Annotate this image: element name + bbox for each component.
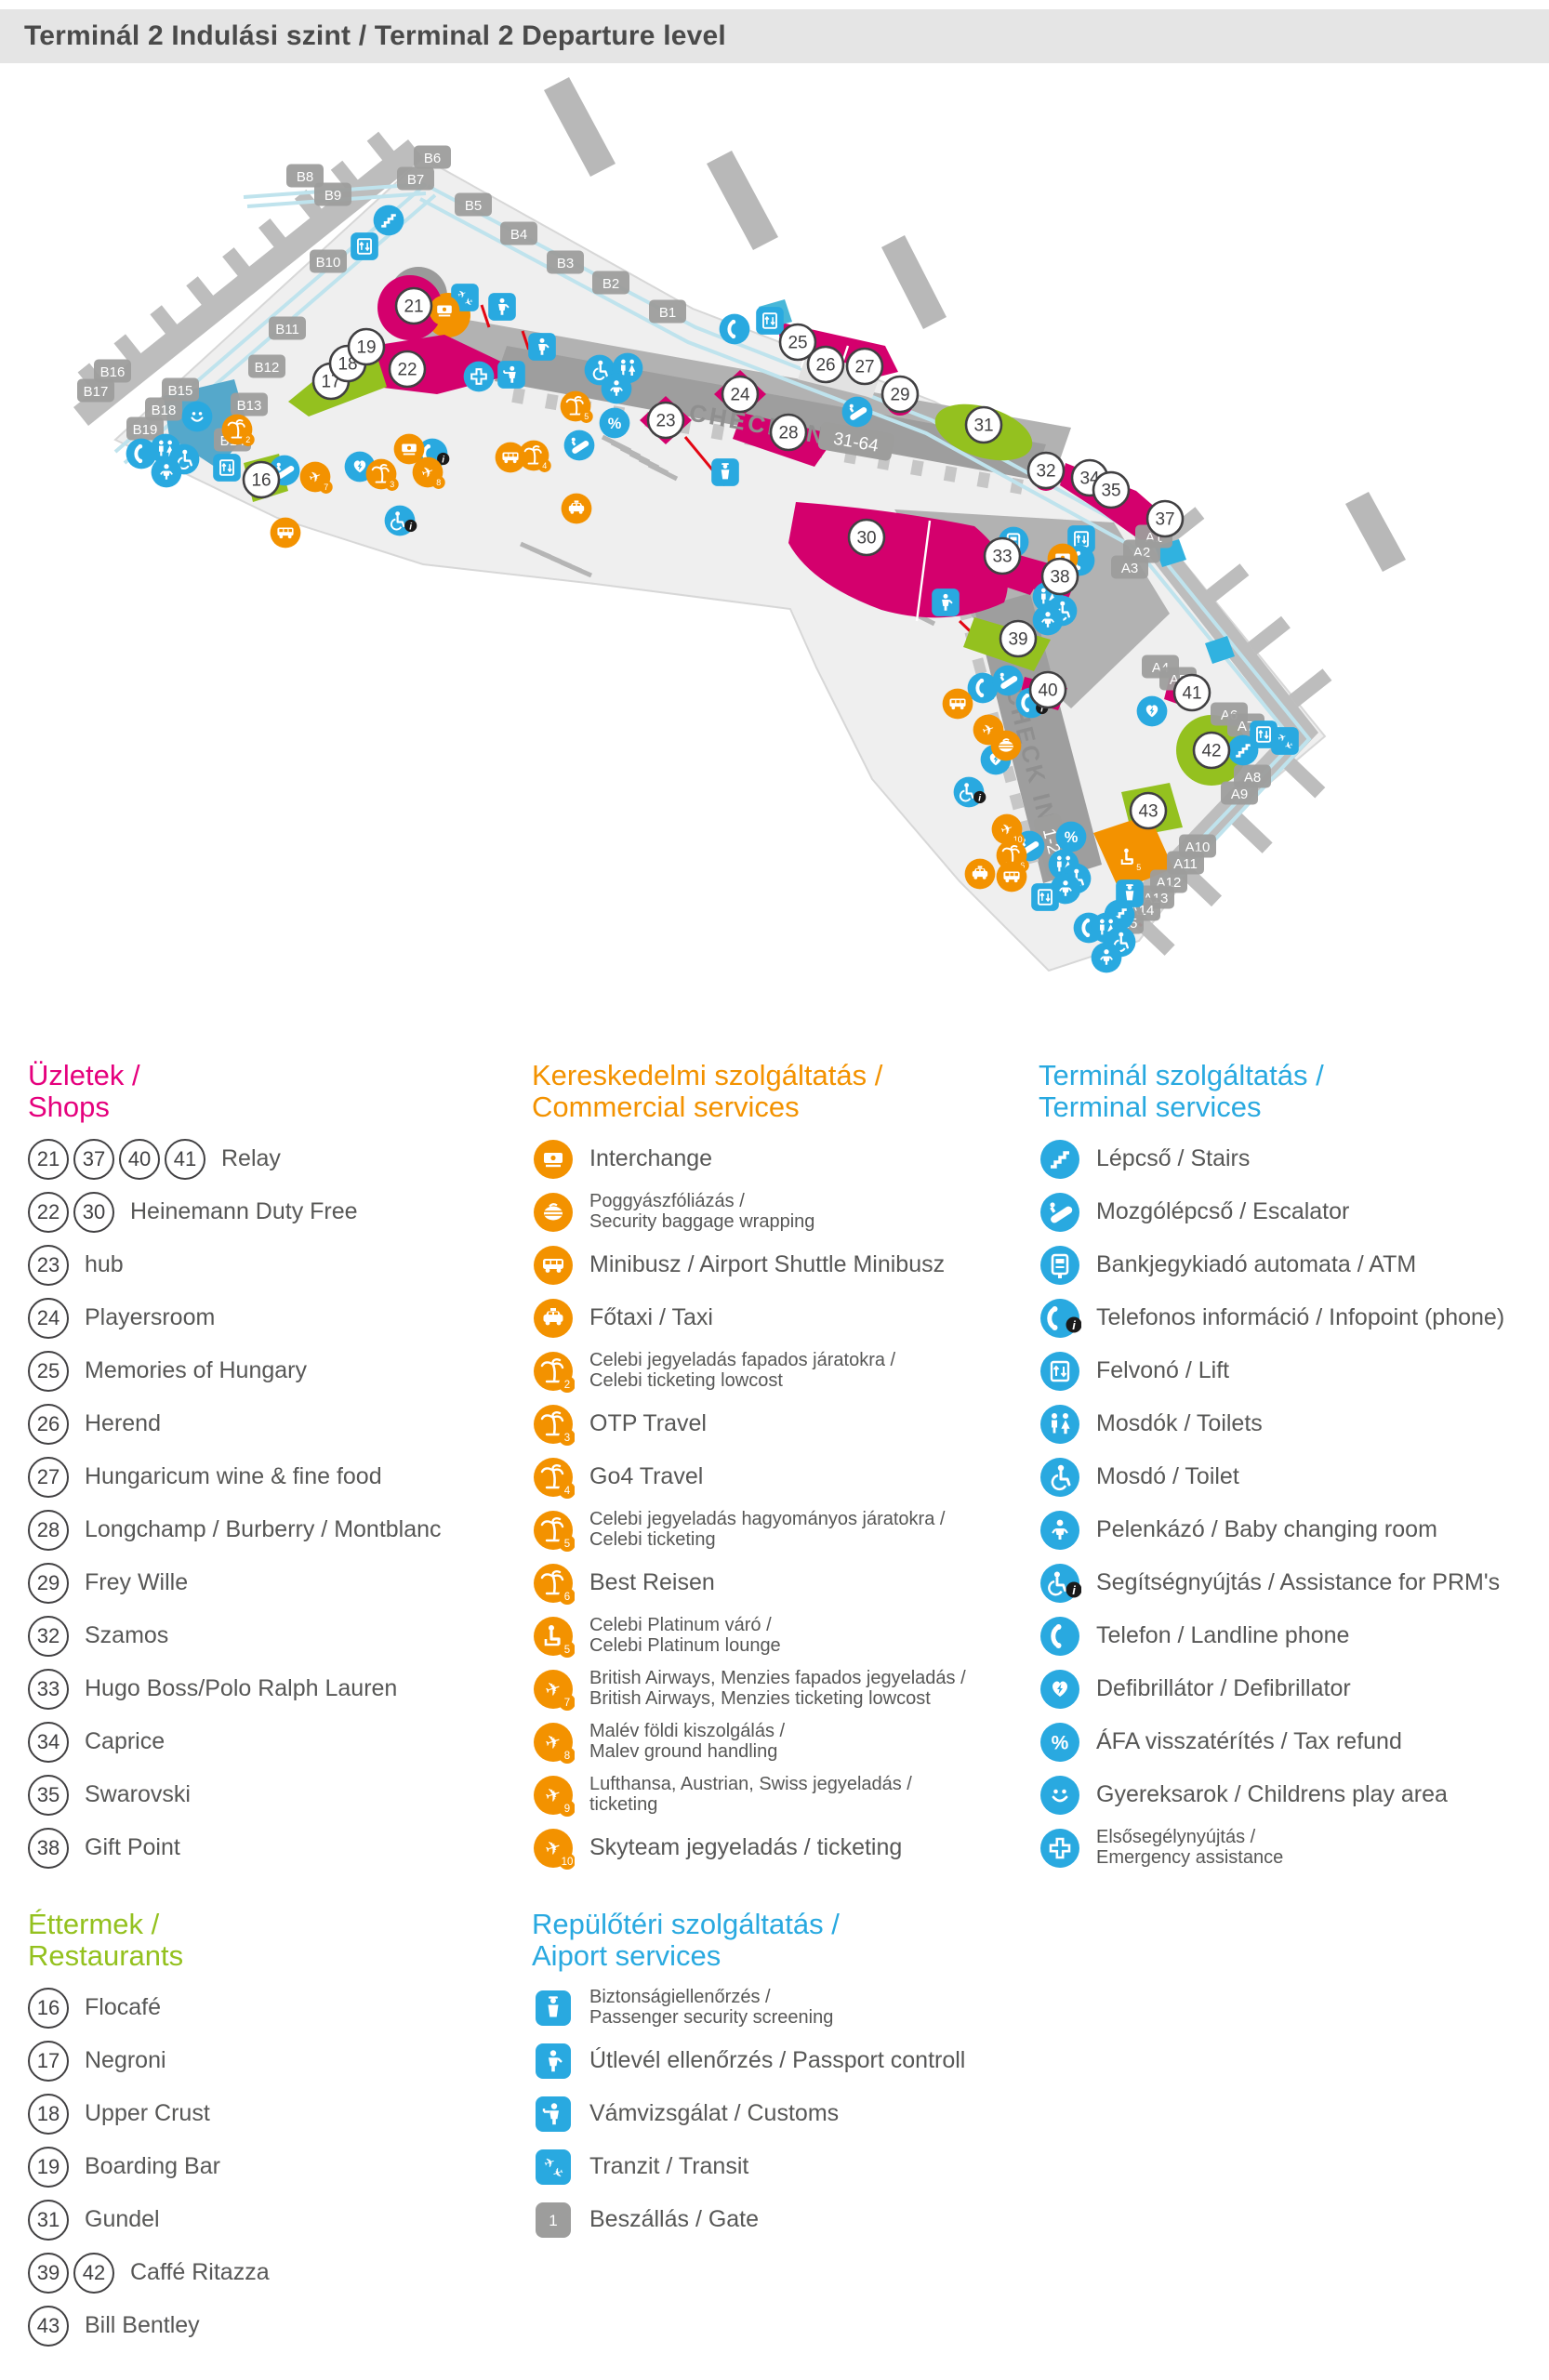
toilet-icon [1039, 1456, 1081, 1499]
legend-label: Negroni [85, 2047, 166, 2074]
firstaid-icon [1039, 1827, 1081, 1870]
palm-icon: 2 [532, 1350, 575, 1393]
palm-icon: 5 [532, 1509, 575, 1552]
palm-icon: 6 [532, 1562, 575, 1605]
legend-label: Pelenkázó / Baby changing room [1096, 1516, 1437, 1543]
page: Terminál 2 Indulási szint / Terminal 2 D… [0, 0, 1549, 2380]
gate-label-B1: B1 [649, 300, 686, 324]
restaurants-heading: Éttermek / Restaurants [28, 1909, 511, 1972]
legend-row: 1Beszállás / Gate [532, 2193, 1039, 2246]
shop-number-28: 28 [28, 1510, 69, 1551]
legend-restaurants: Éttermek / Restaurants 16Flocafé17Negron… [28, 1909, 511, 2352]
escalator-icon [842, 397, 873, 428]
svg-text:32: 32 [1036, 462, 1055, 482]
legend-label: Malév földi kiszolgálás /Malev ground ha… [589, 1722, 785, 1762]
legend-label: Hungaricum wine & fine food [85, 1463, 382, 1490]
legend-label: Elsősegélynyújtás /Emergency assistance [1096, 1828, 1283, 1868]
gate-icon: 1 [532, 2199, 575, 2241]
svg-text:4: 4 [564, 1486, 571, 1497]
minibus-icon [532, 1244, 575, 1287]
shop-number-31: 31 [28, 2200, 69, 2241]
shop-marker-26: 26 [808, 347, 843, 382]
legend-row: Interchange [532, 1132, 1039, 1185]
transit-icon: ✈✈ [532, 2146, 575, 2188]
legend-row: Bankjegykiadó automata / ATM [1039, 1238, 1549, 1291]
shop-marker-27: 27 [847, 349, 882, 384]
legend-row: Vámvizsgálat / Customs [532, 2087, 1039, 2140]
legend-label: Herend [85, 1410, 161, 1437]
svg-text:B10: B10 [316, 255, 341, 271]
baby-icon [1092, 943, 1122, 973]
shop-marker-31: 31 [966, 407, 1001, 443]
shop-marker-16: 16 [244, 462, 279, 497]
svg-text:37: 37 [1155, 510, 1174, 530]
shop-number-22: 22 [28, 1192, 69, 1233]
shop-marker-29: 29 [882, 377, 918, 412]
legend-label: Gundel [85, 2206, 160, 2233]
legend-label: OTP Travel [589, 1410, 707, 1437]
legend-label: Mozgólépcső / Escalator [1096, 1198, 1349, 1225]
escalator-icon [1039, 1191, 1081, 1234]
svg-text:B7: B7 [407, 172, 424, 188]
svg-text:31: 31 [973, 416, 993, 436]
legend-label: Flocafé [85, 1994, 161, 2021]
smiley-icon [1039, 1774, 1081, 1817]
legend-row: Telefon / Landline phone [1039, 1609, 1549, 1662]
svg-text:39: 39 [1008, 630, 1027, 650]
lounge-icon: 5 [532, 1615, 575, 1658]
shop-marker-40: 40 [1030, 672, 1066, 707]
legend-label: Minibusz / Airport Shuttle Minibusz [589, 1251, 945, 1278]
svg-text:1: 1 [549, 2212, 557, 2229]
shop-number-37: 37 [73, 1139, 114, 1180]
svg-text:5: 5 [564, 1539, 570, 1550]
legend-row: 29Frey Wille [28, 1556, 511, 1609]
shop-number-42: 42 [73, 2253, 114, 2294]
legend-row: 31Gundel [28, 2193, 511, 2246]
svg-text:i: i [1072, 1583, 1076, 1597]
plane-icon: ✈8 [532, 1721, 575, 1764]
legend-label: Segítségnyújtás / Assistance for PRM's [1096, 1569, 1500, 1596]
gate-label-B3: B3 [547, 251, 584, 274]
smiley-icon [182, 402, 213, 432]
svg-text:%: % [1065, 829, 1079, 846]
legend-label: Hugo Boss/Polo Ralph Lauren [85, 1675, 397, 1702]
legend-row: 4Go4 Travel [532, 1450, 1039, 1503]
shop-marker-23: 23 [648, 403, 683, 438]
shop-marker-39: 39 [1000, 621, 1036, 656]
svg-text:21: 21 [404, 297, 423, 317]
legend-label: Mosdó / Toilet [1096, 1463, 1239, 1490]
svg-text:i: i [442, 455, 444, 465]
stairs-icon [1039, 1138, 1081, 1181]
svg-text:B4: B4 [510, 227, 527, 243]
legend-row: ✈✈Tranzit / Transit [532, 2140, 1039, 2193]
legend-row: 6Best Reisen [532, 1556, 1039, 1609]
shop-number-24: 24 [28, 1298, 69, 1339]
shop-number-34: 34 [28, 1722, 69, 1763]
svg-text:7: 7 [324, 483, 328, 492]
legend-row: ✈9Lufthansa, Austrian, Swiss jegyeladás … [532, 1768, 1039, 1821]
legend-label: Szamos [85, 1622, 168, 1649]
gate-label-B9: B9 [314, 183, 351, 206]
interchange-icon [532, 1138, 575, 1181]
svg-text:8: 8 [436, 478, 441, 487]
legend-label: Telefonos információ / Infopoint (phone) [1096, 1304, 1504, 1331]
svg-text:B3: B3 [557, 256, 574, 271]
legend-row: iTelefonos információ / Infopoint (phone… [1039, 1291, 1549, 1344]
gate-label-B13: B13 [231, 393, 268, 416]
legend-row: 3942Caffé Ritazza [28, 2246, 511, 2299]
shop-marker-19: 19 [349, 329, 384, 364]
svg-text:A3: A3 [1121, 561, 1138, 576]
svg-text:3: 3 [564, 1433, 570, 1444]
stairs-icon [374, 205, 404, 236]
shop-number-40: 40 [119, 1139, 160, 1180]
shop-number-17: 17 [28, 2041, 69, 2082]
svg-text:B16: B16 [100, 364, 126, 380]
legend-terminal: Terminál szolgáltatás / Terminal service… [1039, 1060, 1549, 1874]
transit-icon: ✈✈ [1271, 727, 1299, 755]
legend-label: British Airways, Menzies fapados jegyela… [589, 1669, 966, 1709]
shop-number-33: 33 [28, 1669, 69, 1710]
defib-icon [1137, 696, 1168, 727]
svg-text:%: % [608, 416, 622, 432]
legend-label: Best Reisen [589, 1569, 715, 1596]
shop-marker-30: 30 [849, 520, 884, 555]
gate-label-A9: A9 [1221, 782, 1258, 805]
legend-row: 21374041Relay [28, 1132, 511, 1185]
legend-row: iSegítségnyújtás / Assistance for PRM's [1039, 1556, 1549, 1609]
legend-row: 32Szamos [28, 1609, 511, 1662]
shop-marker-21: 21 [396, 288, 431, 324]
taxrefund-icon: % [600, 408, 630, 439]
prm-icon: i [1039, 1562, 1081, 1605]
legend-label: Celebi jegyeladás fapados járatokra /Cel… [589, 1351, 895, 1391]
svg-text:B18: B18 [152, 403, 177, 418]
legend-label: Caprice [85, 1728, 165, 1755]
legend-row: Elsősegélynyújtás /Emergency assistance [1039, 1821, 1549, 1874]
shop-number-19: 19 [28, 2147, 69, 2188]
shop-number-26: 26 [28, 1404, 69, 1445]
legend-row: ✈7British Airways, Menzies fapados jegye… [532, 1662, 1039, 1715]
shop-number-38: 38 [28, 1828, 69, 1869]
gate-label-B4: B4 [500, 222, 537, 245]
shop-number-18: 18 [28, 2094, 69, 2135]
svg-text:40: 40 [1038, 681, 1057, 701]
legend-label: Lépcső / Stairs [1096, 1145, 1250, 1172]
svg-text:9: 9 [564, 1804, 570, 1815]
minibus-icon [997, 862, 1027, 892]
legend-label: Főtaxi / Taxi [589, 1304, 713, 1331]
shops-heading: Üzletek / Shops [28, 1060, 511, 1123]
baby-icon [152, 457, 182, 488]
svg-text:i: i [409, 522, 412, 532]
svg-text:23: 23 [655, 412, 675, 431]
legend-label: Interchange [589, 1145, 712, 1172]
svg-text:B13: B13 [237, 398, 262, 414]
plane-icon: ✈9 [532, 1774, 575, 1817]
legend-row: 24Playersroom [28, 1291, 511, 1344]
svg-text:2: 2 [564, 1380, 570, 1391]
legend-row: 2Celebi jegyeladás fapados járatokra /Ce… [532, 1344, 1039, 1397]
svg-text:B8: B8 [297, 169, 313, 185]
baby-icon [1033, 605, 1064, 636]
legend-label: Bill Bentley [85, 2312, 200, 2339]
shop-number-32: 32 [28, 1616, 69, 1657]
taxi-icon [562, 494, 592, 524]
svg-text:5: 5 [1136, 863, 1141, 872]
terminal-heading: Terminál szolgáltatás / Terminal service… [1039, 1060, 1549, 1123]
svg-text:8: 8 [564, 1751, 570, 1762]
legend-row: 18Upper Crust [28, 2087, 511, 2140]
phone-icon [720, 314, 750, 345]
interchange-icon [430, 296, 460, 326]
lift-icon [1031, 883, 1059, 911]
passport-icon [488, 293, 516, 321]
gate-label-B17: B17 [77, 379, 114, 403]
legend-row: 35Swarovski [28, 1768, 511, 1821]
legend-label: Caffé Ritazza [130, 2259, 270, 2286]
legend-row: 28Longchamp / Burberry / Montblanc [28, 1503, 511, 1556]
legend-row: Biztonságiellenőrzés /Passenger security… [532, 1981, 1039, 2034]
shop-marker-33: 33 [985, 538, 1020, 574]
legend-label: Telefon / Landline phone [1096, 1622, 1349, 1649]
legend-row: 43Bill Bentley [28, 2299, 511, 2352]
lift-icon [1039, 1350, 1081, 1393]
security-icon [532, 1987, 575, 2030]
passport-icon [932, 588, 960, 616]
gate-label-A3: A3 [1111, 556, 1148, 579]
legend-row: 27Hungaricum wine & fine food [28, 1450, 511, 1503]
airport-heading: Repülőtéri szolgáltatás / Aiport service… [532, 1909, 1039, 1972]
svg-text:i: i [1072, 1318, 1076, 1332]
taxrefund-icon: % [1039, 1721, 1081, 1764]
legend-label: Poggyászfóliázás /Security baggage wrapp… [589, 1192, 814, 1232]
svg-text:16: 16 [251, 471, 271, 491]
shop-number-27: 27 [28, 1457, 69, 1498]
legend-label: Vámvizsgálat / Customs [589, 2100, 839, 2127]
legend-row: Poggyászfóliázás /Security baggage wrapp… [532, 1185, 1039, 1238]
wrapping-icon [532, 1191, 575, 1234]
shop-number-35: 35 [28, 1775, 69, 1816]
legend-label: Tranzit / Transit [589, 2153, 748, 2180]
legend-row: 26Herend [28, 1397, 511, 1450]
svg-text:3: 3 [390, 480, 394, 489]
legend-row: 23hub [28, 1238, 511, 1291]
shop-marker-28: 28 [771, 415, 806, 450]
shop-number-41: 41 [165, 1139, 205, 1180]
legend-row: 5Celebi Platinum váró /Celebi Platinum l… [532, 1609, 1039, 1662]
svg-text:B15: B15 [168, 383, 193, 399]
legend-row: ✈8Malév földi kiszolgálás /Malev ground … [532, 1715, 1039, 1768]
legend-row: ✈10Skyteam jegyeladás / ticketing [532, 1821, 1039, 1874]
svg-text:6: 6 [564, 1592, 570, 1603]
infopoint-icon: i [1039, 1297, 1081, 1340]
svg-text:28: 28 [778, 424, 798, 443]
legend-label: Bankjegykiadó automata / ATM [1096, 1251, 1416, 1278]
legend-label: Frey Wille [85, 1569, 188, 1596]
gate-label-B2: B2 [592, 271, 629, 295]
svg-text:A9: A9 [1231, 787, 1248, 802]
minibus-icon [271, 518, 301, 549]
svg-text:33: 33 [992, 548, 1012, 567]
legend-row: Mosdó / Toilet [1039, 1450, 1549, 1503]
taxrefund-icon: % [1056, 822, 1087, 853]
svg-text:29: 29 [890, 386, 909, 405]
legend-label: Defibrillátor / Defibrillator [1096, 1675, 1351, 1702]
svg-text:41: 41 [1182, 684, 1201, 704]
svg-text:24: 24 [730, 386, 750, 405]
svg-text:7: 7 [564, 1698, 570, 1709]
svg-text:B2: B2 [602, 276, 619, 292]
svg-text:B17: B17 [84, 384, 109, 400]
legend-label: Playersroom [85, 1304, 215, 1331]
atm-icon [1039, 1244, 1081, 1287]
firstaid-icon [464, 362, 495, 392]
legend-row: Pelenkázó / Baby changing room [1039, 1503, 1549, 1556]
legend-row: 17Negroni [28, 2034, 511, 2087]
baby-icon [1039, 1509, 1081, 1552]
lift-icon [213, 454, 241, 482]
legend-airport: Repülőtéri szolgáltatás / Aiport service… [532, 1909, 1039, 2246]
svg-text:19: 19 [356, 338, 376, 358]
shop-number-30: 30 [73, 1192, 114, 1233]
legend-label: hub [85, 1251, 124, 1278]
gate-label-B11: B11 [269, 317, 306, 340]
gate-label-B12: B12 [248, 355, 285, 378]
wrapping-icon [991, 731, 1022, 761]
legend-commercial: Kereskedelmi szolgáltatás / Commercial s… [532, 1060, 1039, 1874]
plane-icon: ✈7 [532, 1668, 575, 1711]
legend-label: ÁFA visszatérítés / Tax refund [1096, 1728, 1402, 1755]
lift-icon [351, 232, 378, 260]
svg-text:30: 30 [856, 529, 876, 549]
svg-text:27: 27 [854, 358, 874, 377]
svg-text:2: 2 [245, 435, 250, 444]
gate-label-B5: B5 [455, 193, 492, 217]
legend-row: 38Gift Point [28, 1821, 511, 1874]
svg-text:5: 5 [584, 412, 589, 421]
taxi-icon [532, 1297, 575, 1340]
escalator-icon [993, 666, 1024, 696]
legend-row: 16Flocafé [28, 1981, 511, 2034]
minibus-icon [943, 689, 973, 720]
legend-label: Gift Point [85, 1834, 180, 1861]
svg-text:%: % [1052, 1732, 1069, 1753]
legend-label: Celebi jegyeladás hagyományos járatokra … [589, 1510, 945, 1550]
shop-marker-41: 41 [1174, 675, 1210, 710]
palm-icon: 4 [532, 1456, 575, 1499]
legend-label: Longchamp / Burberry / Montblanc [85, 1516, 442, 1543]
shop-marker-42: 42 [1194, 733, 1229, 768]
legend-label: Upper Crust [85, 2100, 210, 2127]
legend-label: Memories of Hungary [85, 1357, 307, 1384]
legend-label: Mosdók / Toilets [1096, 1410, 1263, 1437]
svg-text:43: 43 [1138, 802, 1158, 822]
svg-text:B9: B9 [324, 188, 341, 204]
legend-row: 19Boarding Bar [28, 2140, 511, 2193]
shop-marker-22: 22 [390, 351, 425, 387]
phone-icon [1039, 1615, 1081, 1658]
escalator-icon [564, 430, 595, 461]
legend-label: Útlevél ellenőrzés / Passport controll [589, 2047, 965, 2074]
legend-row: Minibusz / Airport Shuttle Minibusz [532, 1238, 1039, 1291]
legend-label: Gyereksarok / Childrens play area [1096, 1781, 1448, 1808]
legend-label: Lufthansa, Austrian, Swiss jegyeladás /t… [589, 1775, 912, 1815]
svg-text:26: 26 [815, 356, 835, 376]
svg-text:i: i [978, 793, 981, 803]
legend-label: Felvonó / Lift [1096, 1357, 1229, 1384]
shop-number-29: 29 [28, 1563, 69, 1604]
gate-label-B6: B6 [414, 146, 451, 169]
commercial-heading: Kereskedelmi szolgáltatás / Commercial s… [532, 1060, 1039, 1123]
legend-label: Biztonságiellenőrzés /Passenger security… [589, 1988, 833, 2028]
toilets-icon [1039, 1403, 1081, 1446]
legend-row: 2230Heinemann Duty Free [28, 1185, 511, 1238]
shop-number-16: 16 [28, 1988, 69, 2029]
svg-text:38: 38 [1050, 568, 1069, 588]
baby-icon [602, 374, 632, 404]
svg-text:B12: B12 [255, 360, 280, 376]
legend-label: Go4 Travel [589, 1463, 703, 1490]
svg-text:B1: B1 [659, 305, 676, 321]
legend-label: Beszállás / Gate [589, 2206, 759, 2233]
legend-row: Lépcső / Stairs [1039, 1132, 1549, 1185]
svg-text:10: 10 [562, 1857, 574, 1868]
svg-text:B19: B19 [133, 422, 158, 438]
svg-text:42: 42 [1201, 742, 1221, 761]
legend-row: Mozgólépcső / Escalator [1039, 1185, 1549, 1238]
legend-label: Relay [221, 1145, 281, 1172]
svg-text:B6: B6 [424, 151, 441, 166]
taxi-icon [965, 859, 996, 890]
legend-row: 5Celebi jegyeladás hagyományos járatokra… [532, 1503, 1039, 1556]
security-icon [711, 458, 739, 486]
legend-label: Celebi Platinum váró /Celebi Platinum lo… [589, 1616, 781, 1656]
legend-shops: Üzletek / Shops 21374041Relay2230Heinema… [28, 1060, 511, 1874]
legend-label: Boarding Bar [85, 2153, 220, 2180]
legend-row: Mosdók / Toilets [1039, 1397, 1549, 1450]
palm-icon: 3 [532, 1403, 575, 1446]
legend-label: Skyteam jegyeladás / ticketing [589, 1834, 902, 1861]
svg-text:4: 4 [542, 461, 547, 470]
shop-marker-43: 43 [1131, 793, 1166, 828]
shop-number-23: 23 [28, 1245, 69, 1286]
shop-marker-38: 38 [1042, 559, 1078, 594]
shop-number-21: 21 [28, 1139, 69, 1180]
legend-row: 33Hugo Boss/Polo Ralph Lauren [28, 1662, 511, 1715]
legend-row: 3OTP Travel [532, 1397, 1039, 1450]
svg-text:25: 25 [788, 334, 807, 353]
svg-text:35: 35 [1101, 482, 1120, 501]
shop-marker-37: 37 [1147, 501, 1183, 536]
svg-text:A11: A11 [1173, 856, 1198, 872]
shop-number-39: 39 [28, 2253, 69, 2294]
svg-text:B5: B5 [465, 198, 482, 214]
plane-icon: ✈10 [532, 1827, 575, 1870]
customs-icon [497, 361, 525, 389]
defib-icon [1039, 1668, 1081, 1711]
legend-row: Főtaxi / Taxi [532, 1291, 1039, 1344]
lift-icon [756, 307, 784, 335]
customs-icon [532, 2093, 575, 2135]
legend-row: 34Caprice [28, 1715, 511, 1768]
passport-icon [532, 2040, 575, 2082]
gate-label-B7: B7 [397, 167, 434, 191]
legend-row: Gyereksarok / Childrens play area [1039, 1768, 1549, 1821]
shop-marker-35: 35 [1093, 472, 1129, 508]
